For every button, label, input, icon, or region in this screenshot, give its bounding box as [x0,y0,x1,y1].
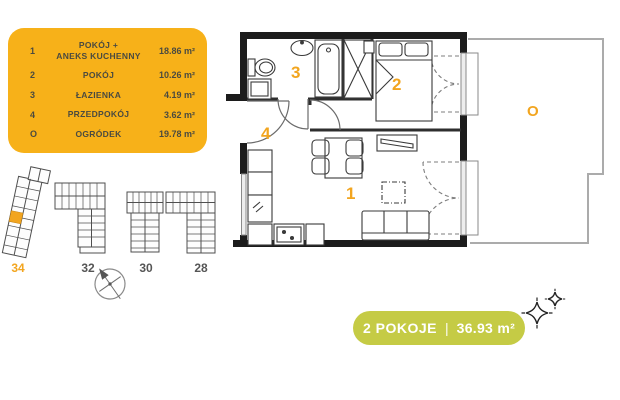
plan-room-label-2: 2 [392,76,401,93]
plan-room-label-garden: O [527,104,539,119]
room-number: 2 [20,70,54,80]
legend-row: 4 PRZEDPOKÓJ 3.62 m² [20,108,195,121]
site-building-28[interactable] [166,192,215,253]
legend-row: 1 POKÓJ + ANEKS KUCHENNY 18.86 m² [20,40,195,62]
building-label-30[interactable]: 30 [133,261,159,275]
room-area: 3.62 m² [143,110,195,120]
room-area: 19.78 m² [143,129,195,139]
sparkles-icon [522,289,566,329]
floorplan-page: 1 POKÓJ + ANEKS KUCHENNY 18.86 m² 2 POKÓ… [0,0,620,400]
legend-card: 1 POKÓJ + ANEKS KUCHENNY 18.86 m² 2 POKÓ… [8,28,207,153]
summary-badge: 2 POKOJE | 36.93 m² [353,311,525,345]
room-area: 10.26 m² [143,70,195,80]
room-number: 4 [20,110,54,120]
room-number: 1 [20,46,54,56]
site-building-30[interactable] [127,192,163,252]
toilet-tank-icon [248,59,255,76]
chair-icon [312,158,329,174]
room-name: ŁAZIENKA [54,90,143,101]
site-building-32[interactable] [55,183,105,253]
badge-separator: | [445,320,449,336]
legend-row: 3 ŁAZIENKA 4.19 m² [20,89,195,102]
building-label-34[interactable]: 34 [5,261,31,275]
plan-room-label-3: 3 [291,64,300,81]
legend-row: 2 POKÓJ 10.26 m² [20,69,195,82]
chair-icon [312,140,329,156]
room-area: 4.19 m² [143,90,195,100]
room-area: 18.86 m² [143,46,195,56]
coffee-table-icon [382,182,405,203]
garden-outline [468,39,603,243]
pillow-icon [405,43,428,56]
room-number: O [20,129,54,139]
room-name: POKÓJ + ANEKS KUCHENNY [54,40,143,62]
room-name: POKÓJ [54,70,143,81]
highlighted-unit [9,211,23,224]
plan-room-label-1: 1 [346,185,355,202]
badge-total-area: 36.93 m² [457,320,515,336]
room-name: OGRÓDEK [54,129,143,140]
badge-room-count: 2 POKOJE [363,320,437,336]
pillow-icon [379,43,402,56]
building-label-32[interactable]: 32 [75,261,101,275]
room-number: 3 [20,90,54,100]
building-label-28[interactable]: 28 [188,261,214,275]
nightstand-icon [364,41,374,53]
room-name: PRZEDPOKÓJ [54,109,143,120]
sofa-icon [362,211,429,240]
living-furniture [312,135,429,240]
chair-icon [346,140,363,156]
chair-icon [346,158,363,174]
plan-room-label-4: 4 [261,125,270,142]
site-building-34[interactable] [2,165,50,259]
legend-row: O OGRÓDEK 19.78 m² [20,128,195,141]
